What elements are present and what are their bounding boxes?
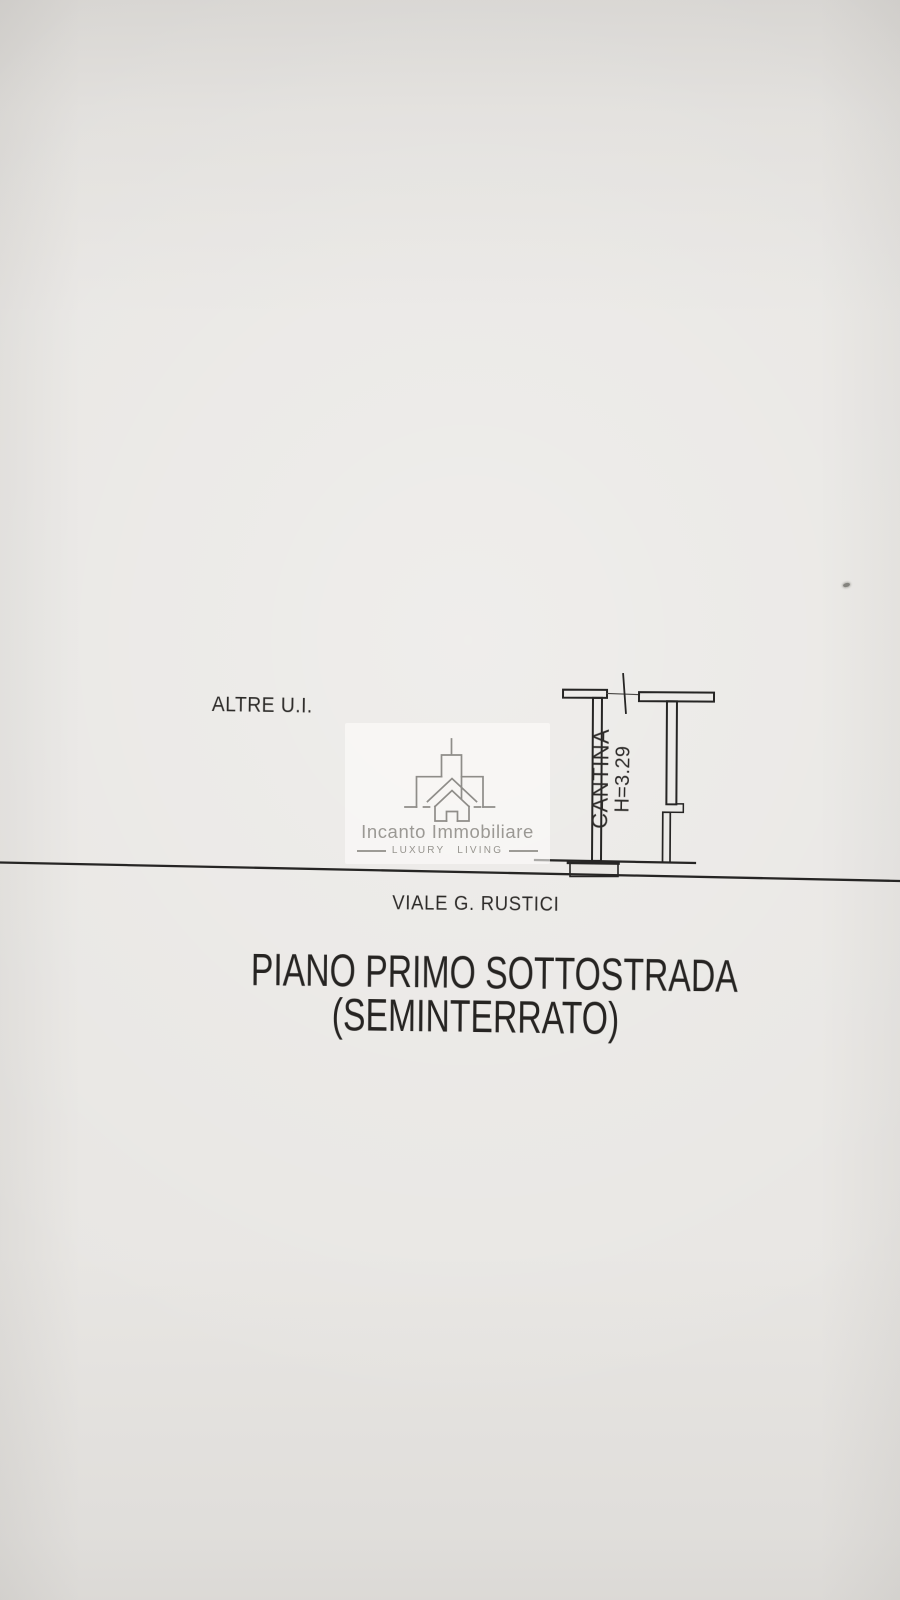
room-label: CANTINA: [588, 719, 613, 839]
plan-walls: [562, 674, 714, 863]
room-height-label: H=3.29: [611, 719, 636, 839]
area-label: ALTRE U.I.: [212, 693, 313, 719]
scanned-floor-plan-page: ALTRE U.I. CANTINA H=3.29 VIALE G. RUSTI…: [0, 0, 900, 1600]
watermark-card: Incanto Immobiliare LUXURY LIVING: [345, 723, 550, 864]
estate-building-line-icon: [398, 730, 498, 822]
room-label-block: CANTINA H=3.29: [588, 719, 636, 840]
brand-name: Incanto Immobiliare: [361, 822, 534, 842]
tagline: LUXURY LIVING: [392, 845, 503, 857]
street-line: [0, 863, 900, 882]
tagline-row: LUXURY LIVING: [357, 845, 538, 857]
tagline-rule-left: [357, 850, 386, 852]
paper-speck: [843, 582, 851, 588]
tagline-rule-right: [509, 850, 538, 852]
plan-title: PIANO PRIMO SOTTOSTRADA (SEMINTERRATO): [250, 948, 701, 1042]
